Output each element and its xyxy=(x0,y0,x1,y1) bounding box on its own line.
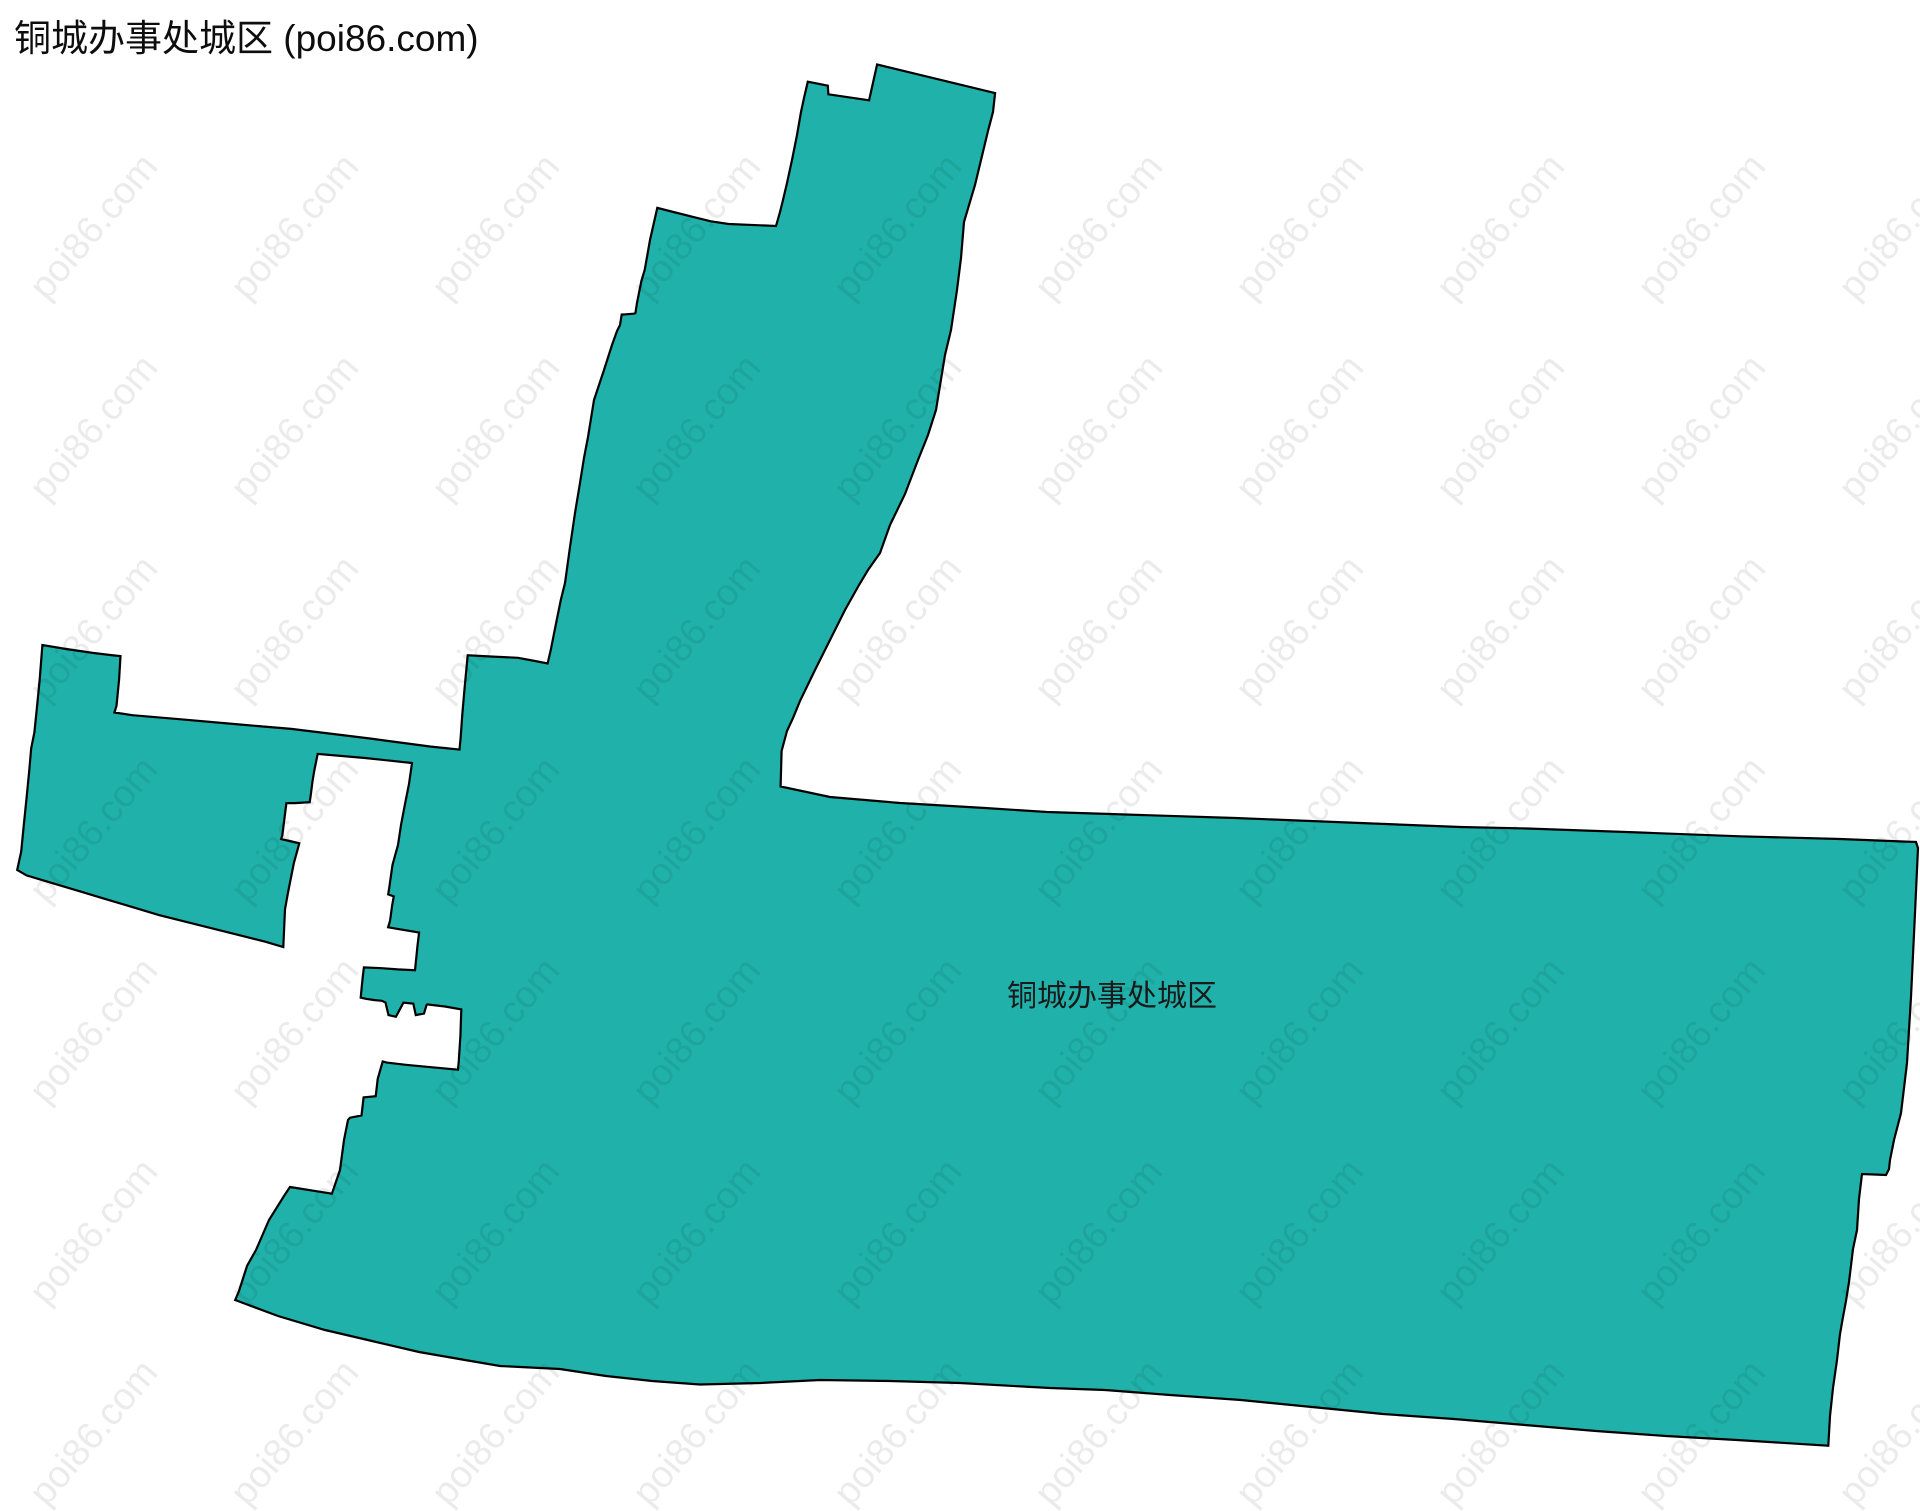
svg-text:poi86.com: poi86.com xyxy=(1428,146,1573,307)
svg-text:poi86.com: poi86.com xyxy=(1830,146,1920,307)
svg-text:poi86.com: poi86.com xyxy=(1227,146,1372,307)
svg-text:poi86.com: poi86.com xyxy=(1026,146,1171,307)
svg-text:poi86.com: poi86.com xyxy=(423,146,568,307)
svg-text:poi86.com: poi86.com xyxy=(1629,146,1774,307)
svg-text:poi86.com: poi86.com xyxy=(21,146,166,307)
svg-text:poi86.com: poi86.com xyxy=(222,146,367,307)
svg-text:铜城办事处城区 (poi86.com): 铜城办事处城区 (poi86.com) xyxy=(14,18,479,59)
